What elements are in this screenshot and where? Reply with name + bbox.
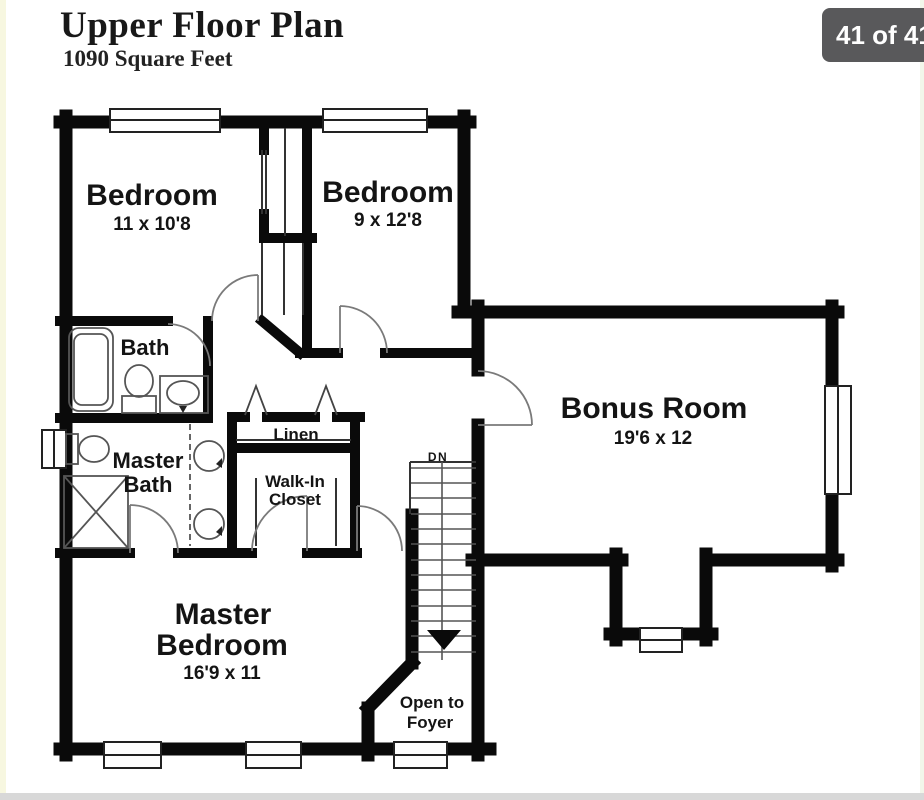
- door-bonus-room: [478, 371, 532, 425]
- door-master-bedroom: [357, 506, 402, 551]
- bedroom2-dims: 9 x 12'8: [354, 210, 422, 231]
- window-bonus-bump: [640, 628, 682, 652]
- vanity-master-bath: [190, 424, 224, 546]
- master-bath-name-2: Bath: [124, 472, 173, 497]
- door-bedroom1: [212, 275, 258, 321]
- walk-in-name-1: Walk-In: [265, 472, 325, 491]
- bathtub: [69, 328, 113, 411]
- walk-in-name-2: Closet: [269, 490, 321, 509]
- bedroom1-dims: 11 x 10'8: [113, 214, 190, 235]
- master-bedroom-dims: 16'9 x 11: [183, 663, 261, 684]
- bath-name: Bath: [121, 335, 170, 360]
- stair-treads: [411, 468, 476, 652]
- bonus-room-name: Bonus Room: [561, 392, 748, 425]
- master-bedroom-name-2: Bedroom: [156, 629, 288, 662]
- window-bottom-2: [246, 742, 301, 768]
- window-master-bath: [42, 430, 66, 468]
- shower: [64, 476, 128, 548]
- bedroom1-name: Bedroom: [86, 179, 218, 212]
- stair-down-arrow: [427, 630, 461, 650]
- window-bottom-3: [394, 742, 447, 768]
- bifold-doors-linen: [245, 386, 337, 415]
- image-counter-badge: 41 of 41: [822, 8, 924, 62]
- foyer-label-2: Foyer: [407, 713, 454, 732]
- stair-boundary: [410, 462, 476, 514]
- window-bonus-right: [825, 386, 851, 494]
- linen-name: Linen: [273, 425, 318, 444]
- floor-plan-svg: Bedroom 11 x 10'8 Bedroom 9 x 12'8 Bath …: [0, 0, 924, 800]
- toilet-bath: [122, 365, 156, 413]
- foyer-label-1: Open to: [400, 693, 464, 712]
- fixtures: [64, 328, 224, 548]
- master-bedroom-name-1: Master: [175, 598, 272, 631]
- door-bedroom2: [340, 306, 387, 353]
- bonus-room-dims: 19'6 x 12: [614, 428, 692, 449]
- stairs-dn-label: DN: [428, 450, 448, 464]
- window-top-right: [323, 109, 427, 132]
- door-master-bath: [130, 505, 178, 553]
- master-bath-name-1: Master: [113, 448, 184, 473]
- bottom-edge-strip: [0, 793, 924, 800]
- bedroom2-name: Bedroom: [322, 176, 454, 209]
- sink-bath: [160, 376, 208, 413]
- window-bottom-1: [104, 742, 161, 768]
- listing-image-viewer: Bedroom 11 x 10'8 Bedroom 9 x 12'8 Bath …: [0, 0, 924, 800]
- window-top-left: [110, 109, 220, 132]
- page-title: Upper Floor Plan: [60, 4, 344, 47]
- page-subtitle: 1090 Square Feet: [63, 46, 233, 72]
